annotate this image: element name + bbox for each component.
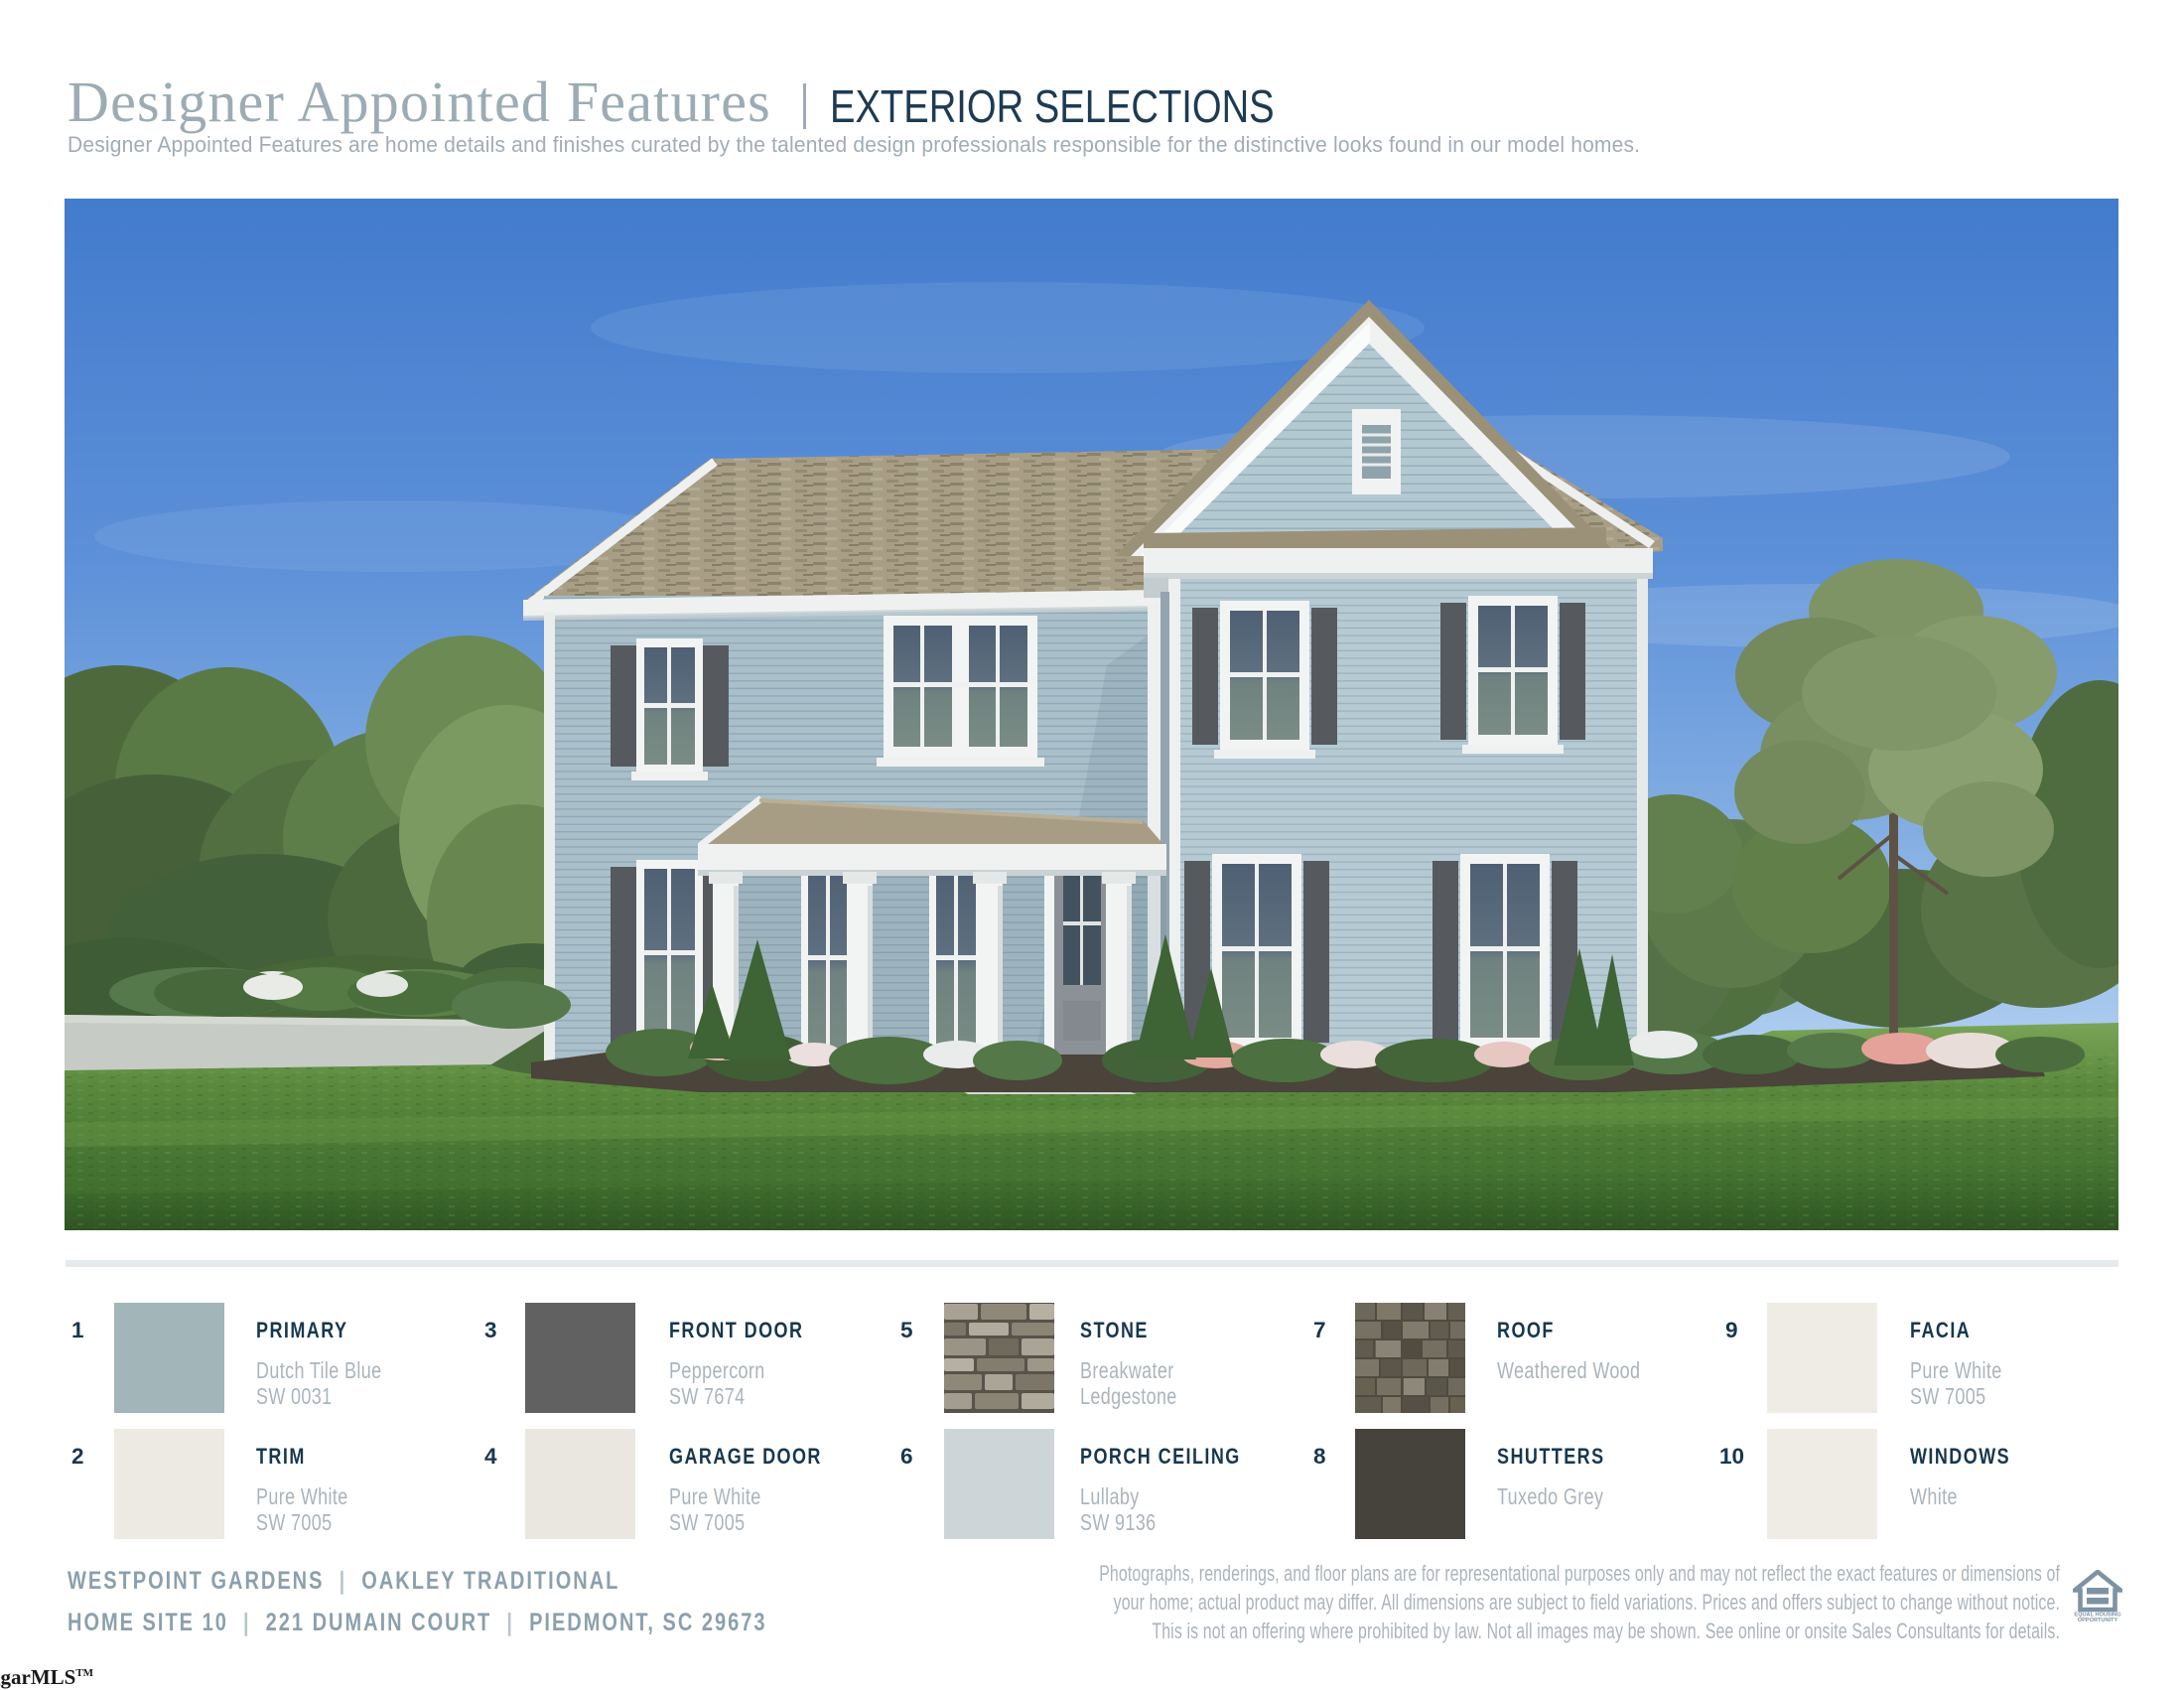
svg-text:OPPORTUNITY: OPPORTUNITY xyxy=(2078,1618,2118,1621)
